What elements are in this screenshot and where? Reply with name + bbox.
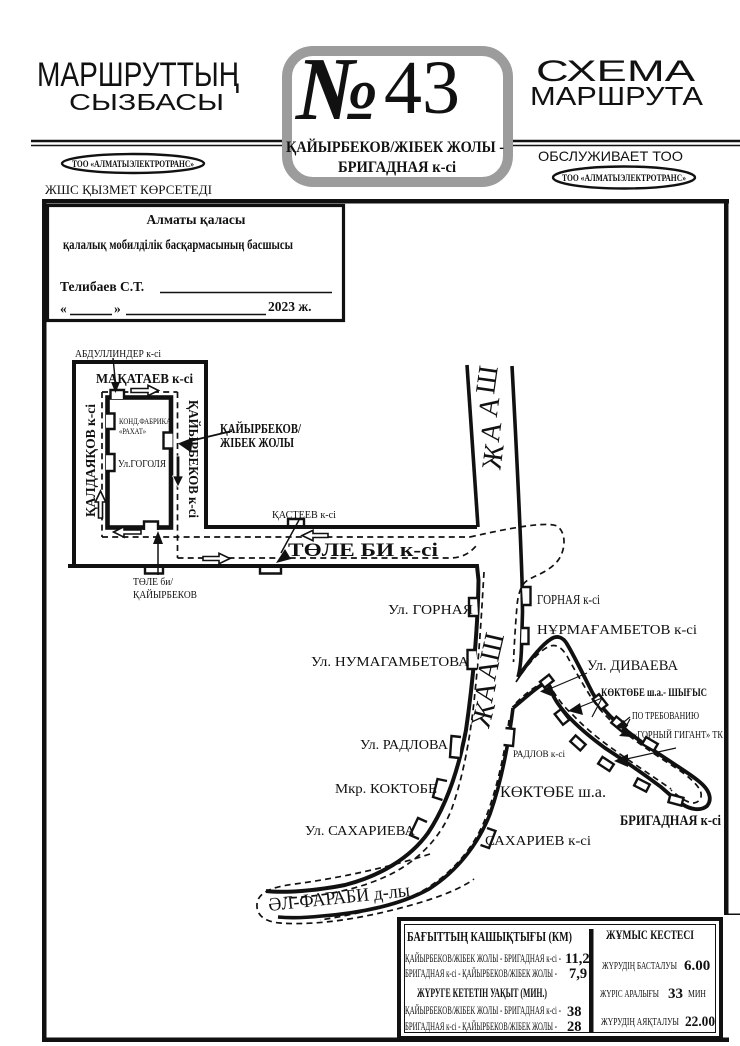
svg-text:ҚАЙЫРБЕКОВ/ЖІБЕК ЖОЛЫ - БРИГАД: ҚАЙЫРБЕКОВ/ЖІБЕК ЖОЛЫ - БРИГАДНАЯ к-сі -	[405, 951, 561, 965]
svg-text:МАҚАТАЕВ к-сі: МАҚАТАЕВ к-сі	[96, 371, 193, 386]
svg-text:7,9: 7,9	[569, 966, 587, 982]
svg-text:ГОРНАЯ к-сі: ГОРНАЯ к-сі	[537, 592, 600, 607]
svg-text:ҚАЙЫРБЕКОВ/: ҚАЙЫРБЕКОВ/	[220, 421, 301, 436]
svg-text:ҚАЙЫРБЕКОВ к-сі: ҚАЙЫРБЕКОВ к-сі	[186, 400, 201, 518]
svg-text:«ГОРНЫЙ ГИГАНТ» ТК: «ГОРНЫЙ ГИГАНТ» ТК	[633, 729, 723, 741]
svg-text:МИН: МИН	[688, 989, 706, 1000]
svg-text:ҚАЙЫРБЕКОВ/ЖІБЕК ЖОЛЫ - БРИГАД: ҚАЙЫРБЕКОВ/ЖІБЕК ЖОЛЫ - БРИГАДНАЯ к-сі -	[405, 1003, 561, 1017]
svg-text:КӨКТӨБЕ ш.а.- ШЫҒЫС: КӨКТӨБЕ ш.а.- ШЫҒЫС	[601, 685, 707, 699]
svg-text:СЫЗБАСЫ: СЫЗБАСЫ	[69, 89, 224, 115]
svg-text:ЖШС ҚЫЗМЕТ КӨРСЕТЕДІ: ЖШС ҚЫЗМЕТ КӨРСЕТЕДІ	[45, 182, 212, 197]
svg-text:ҚАЙЫРБЕКОВ/ЖІБЕК ЖОЛЫ -: ҚАЙЫРБЕКОВ/ЖІБЕК ЖОЛЫ -	[286, 137, 504, 156]
svg-text:Мкр. КОКТОБЕ: Мкр. КОКТОБЕ	[335, 781, 437, 796]
svg-text:БРИГАДНАЯ к-сі: БРИГАДНАЯ к-сі	[338, 159, 456, 176]
svg-text:ЖҮРУДІҢ БАСТАЛУЫ: ЖҮРУДІҢ БАСТАЛУЫ	[602, 961, 677, 972]
svg-text:АБДУЛЛИНДЕР к-сі: АБДУЛЛИНДЕР к-сі	[75, 349, 161, 360]
svg-text:қалалық мобилділік басқармасын: қалалық мобилділік басқармасының басшысы	[63, 237, 293, 252]
svg-text:2023 ж.: 2023 ж.	[268, 299, 312, 314]
svg-text:№: №	[294, 40, 378, 139]
svg-text:БАҒЫТТЫҢ КАШЫҚТЫҒЫ (КМ): БАҒЫТТЫҢ КАШЫҚТЫҒЫ (КМ)	[407, 930, 572, 945]
svg-text:ҚАСТЕЕВ к-сі: ҚАСТЕЕВ к-сі	[272, 510, 336, 521]
svg-text:ҚАЛДАЯҚОВ к-сі: ҚАЛДАЯҚОВ к-сі	[83, 404, 98, 517]
svg-text:ҚАЙЫРБЕКОВ: ҚАЙЫРБЕКОВ	[133, 589, 197, 601]
svg-text:28: 28	[567, 1019, 582, 1035]
svg-text:Ул.ГОГОЛЯ: Ул.ГОГОЛЯ	[118, 458, 167, 470]
svg-text:ЖҮРУГЕ КЕТЕТІН УАҚЫТ (МИН.): ЖҮРУГЕ КЕТЕТІН УАҚЫТ (МИН.)	[417, 985, 547, 1000]
svg-text:Ул. ГОРНАЯ: Ул. ГОРНАЯ	[388, 602, 473, 617]
svg-text:БРИГАДНАЯ к-сі: БРИГАДНАЯ к-сі	[620, 813, 721, 829]
svg-text:НҰРМАҒАМБЕТОВ к-сі: НҰРМАҒАМБЕТОВ к-сі	[537, 622, 697, 637]
svg-text:ПО ТРЕБОВАНИЮ: ПО ТРЕБОВАНИЮ	[632, 711, 699, 722]
svg-text:БРИГАДНАЯ к-сі - ҚАЙЫРБЕКОВ/ЖІ: БРИГАДНАЯ к-сі - ҚАЙЫРБЕКОВ/ЖІБЕК ЖОЛЫ -	[405, 966, 557, 980]
svg-text:Алматы қаласы: Алматы қаласы	[147, 212, 246, 227]
svg-text:22.00: 22.00	[685, 1014, 715, 1030]
svg-text:«: «	[60, 301, 67, 316]
svg-text:МАРШРУТА: МАРШРУТА	[530, 81, 704, 111]
svg-text:РАДЛОВ к-сі: РАДЛОВ к-сі	[513, 749, 566, 759]
svg-text:ЖҮРІС АРАЛЫҒЫ: ЖҮРІС АРАЛЫҒЫ	[600, 989, 659, 1000]
svg-text:ТОО «АЛМАТЫЭЛЕКТРОТРАНС»: ТОО «АЛМАТЫЭЛЕКТРОТРАНС»	[562, 173, 686, 183]
svg-text:ТОО «АЛМАТЫЭЛЕКТРОТРАНС»: ТОО «АЛМАТЫЭЛЕКТРОТРАНС»	[72, 159, 194, 169]
svg-text:»: »	[114, 301, 121, 316]
svg-text:Ул. РАДЛОВА: Ул. РАДЛОВА	[360, 737, 448, 752]
svg-text:ОБСЛУЖИВАЕТ ТОО: ОБСЛУЖИВАЕТ ТОО	[538, 148, 683, 164]
svg-text:ЖҮРУДІҢ АЯҚТАЛУЫ: ЖҮРУДІҢ АЯҚТАЛУЫ	[601, 1017, 679, 1028]
svg-text:САХАРИЕВ к-сі: САХАРИЕВ к-сі	[485, 834, 591, 849]
svg-text:БРИГАДНАЯ к-сі - ҚАЙЫРБЕКОВ/ЖІ: БРИГАДНАЯ к-сі - ҚАЙЫРБЕКОВ/ЖІБЕК ЖОЛЫ -	[405, 1019, 557, 1033]
svg-text:11,2: 11,2	[565, 951, 590, 967]
svg-text:КОНД.ФАБРИКА: КОНД.ФАБРИКА	[119, 416, 172, 426]
svg-text:«РАХАТ»: «РАХАТ»	[119, 426, 146, 436]
svg-text:Ш: Ш	[470, 364, 505, 396]
svg-text:Ул. НУМАГАМБЕТОВА: Ул. НУМАГАМБЕТОВА	[311, 654, 469, 669]
svg-text:Ул. ДИВАЕВА: Ул. ДИВАЕВА	[587, 658, 679, 674]
svg-text:ТӨЛЕ би/: ТӨЛЕ би/	[133, 576, 174, 588]
svg-text:33: 33	[668, 986, 683, 1002]
svg-text:КӨКТӨБЕ ш.а.: КӨКТӨБЕ ш.а.	[500, 784, 606, 801]
svg-text:Телибаев С.Т.: Телибаев С.Т.	[60, 279, 144, 294]
svg-text:Ж: Ж	[476, 441, 510, 471]
svg-text:43: 43	[384, 46, 460, 130]
svg-text:6.00: 6.00	[684, 958, 710, 974]
svg-text:Ул. САХАРИЕВА: Ул. САХАРИЕВА	[305, 823, 415, 838]
svg-text:38: 38	[567, 1004, 582, 1020]
svg-text:ТӨЛЕ БИ к-сі: ТӨЛЕ БИ к-сі	[288, 541, 438, 561]
svg-text:ЖҰМЫС КЕСТЕСІ: ЖҰМЫС КЕСТЕСІ	[606, 927, 694, 942]
svg-text:ЖІБЕК ЖОЛЫ: ЖІБЕК ЖОЛЫ	[220, 435, 295, 450]
